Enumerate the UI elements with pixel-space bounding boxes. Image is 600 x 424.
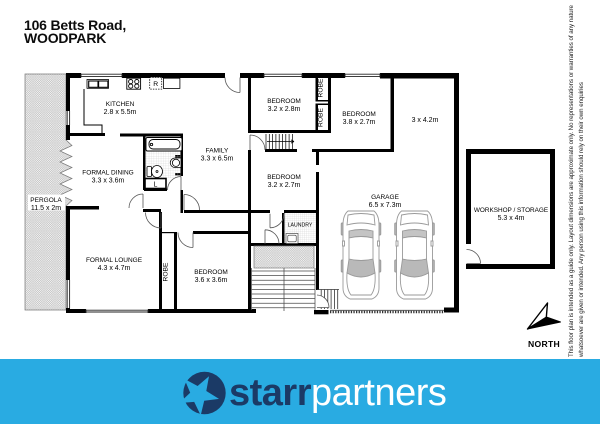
svg-text:WORKSHOP / STORAGE: WORKSHOP / STORAGE [474,207,548,214]
svg-text:LAUNDRY: LAUNDRY [288,223,313,229]
svg-text:3.3 x 3.6m: 3.3 x 3.6m [92,178,125,185]
svg-text:3.2 x 2.7m: 3.2 x 2.7m [268,182,301,189]
svg-text:3 x 4.2m: 3 x 4.2m [412,117,439,124]
svg-text:6.5 x 7.3m: 6.5 x 7.3m [369,202,402,209]
svg-text:BEDROOM: BEDROOM [267,174,301,181]
svg-text:R: R [153,81,158,88]
svg-text:PERGOLA: PERGOLA [30,197,62,204]
svg-text:3.6 x 3.6m: 3.6 x 3.6m [195,277,228,284]
svg-text:L: L [154,182,158,189]
svg-text:5.3 x 4m: 5.3 x 4m [498,215,525,222]
svg-text:BEDROOM: BEDROOM [342,111,376,118]
svg-text:BEDROOM: BEDROOM [194,269,228,276]
svg-text:ROBE: ROBE [318,78,325,97]
svg-text:GARAGE: GARAGE [371,194,399,201]
svg-text:FORMAL LOUNGE: FORMAL LOUNGE [86,257,143,264]
svg-text:ROBE: ROBE [163,262,170,281]
svg-text:3.2 x 2.8m: 3.2 x 2.8m [268,106,301,113]
svg-text:NORTH: NORTH [528,339,560,349]
svg-text:ROBE: ROBE [318,107,325,126]
svg-text:2.8 x 5.5m: 2.8 x 5.5m [104,109,137,116]
svg-text:4.3 x 4.7m: 4.3 x 4.7m [98,265,131,272]
svg-text:3.3 x 6.5m: 3.3 x 6.5m [201,156,234,163]
svg-text:FAMILY: FAMILY [206,148,229,155]
svg-text:BEDROOM: BEDROOM [267,98,301,105]
svg-text:3.8 x 2.7m: 3.8 x 2.7m [343,119,376,126]
svg-text:KITCHEN: KITCHEN [106,101,135,108]
svg-text:11.5 x 2m: 11.5 x 2m [31,205,61,212]
svg-text:FORMAL DINING: FORMAL DINING [82,170,133,177]
